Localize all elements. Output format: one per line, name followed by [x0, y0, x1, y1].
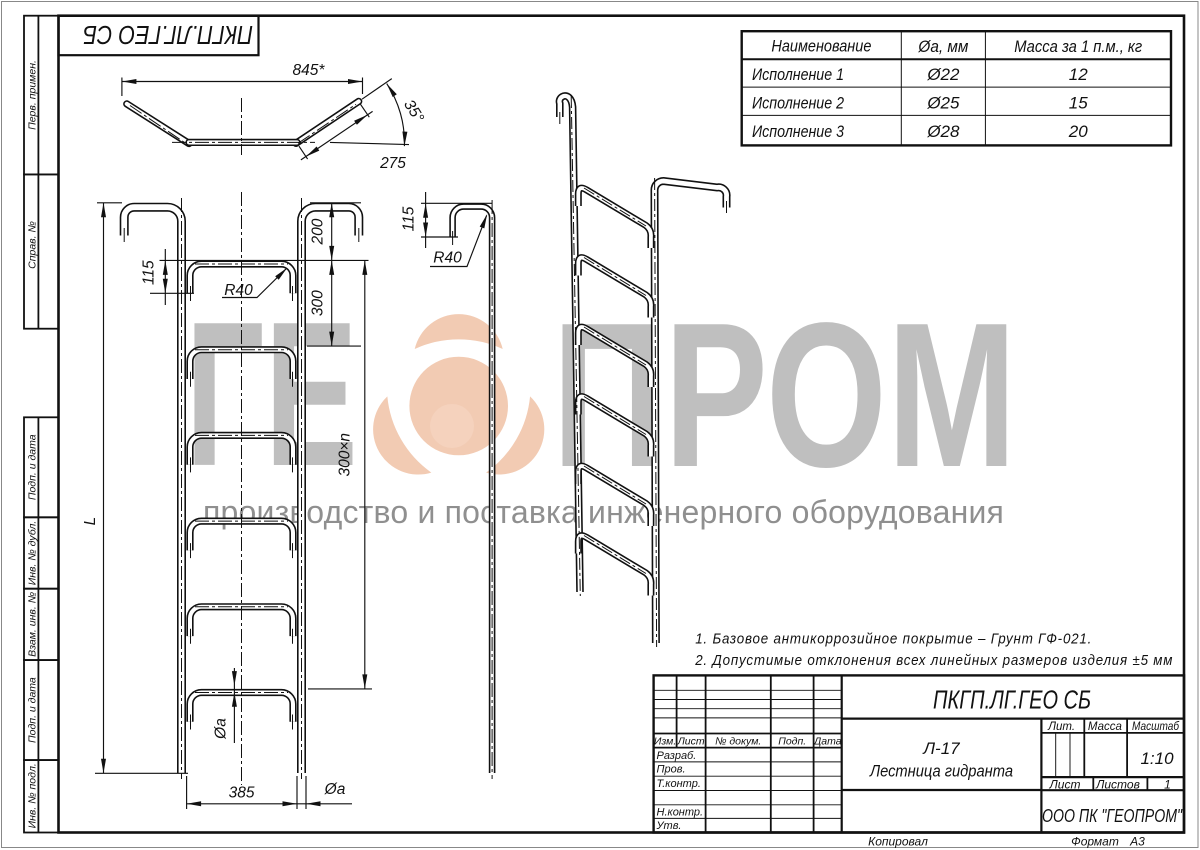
svg-text:№ докум.: № докум.: [715, 736, 761, 748]
svg-text:300: 300: [310, 290, 327, 316]
svg-text:Лист: Лист: [677, 736, 705, 748]
svg-text:А3: А3: [1129, 835, 1145, 849]
svg-text:Разраб.: Разраб.: [657, 750, 697, 762]
svg-text:Дата: Дата: [813, 736, 842, 748]
svg-text:115: 115: [401, 206, 418, 231]
svg-text:275: 275: [379, 155, 406, 172]
svg-text:Øа: Øа: [213, 718, 230, 740]
svg-text:20: 20: [1068, 122, 1088, 141]
svg-text:Перв. примен.: Перв. примен.: [26, 60, 38, 130]
svg-text:Инв. № дубл.: Инв. № дубл.: [26, 521, 38, 586]
svg-text:Подп. и дата: Подп. и дата: [26, 677, 38, 743]
svg-text:Исполнение 2: Исполнение 2: [752, 93, 844, 112]
svg-text:1. Базовое антикоррозийное пок: 1. Базовое антикоррозийное покрытие – Гр…: [695, 631, 1092, 648]
svg-text:L: L: [82, 517, 99, 526]
svg-text:Справ. №: Справ. №: [26, 221, 38, 269]
svg-text:ООО ПК "ГЕОПРОМ": ООО ПК "ГЕОПРОМ": [1042, 806, 1183, 826]
svg-text:12: 12: [1069, 65, 1088, 84]
svg-text:Масса за 1 п.м., кг: Масса за 1 п.м., кг: [1014, 37, 1142, 56]
svg-text:Наименование: Наименование: [771, 37, 871, 56]
svg-text:Листов: Листов: [1095, 777, 1140, 791]
svg-text:15: 15: [1069, 93, 1088, 112]
svg-text:385: 385: [229, 785, 255, 802]
svg-text:Лист: Лист: [1049, 777, 1081, 791]
svg-text:Масштаб: Масштаб: [1132, 721, 1179, 733]
svg-text:Исполнение 3: Исполнение 3: [752, 122, 844, 141]
svg-text:300×n: 300×n: [337, 433, 354, 477]
svg-text:R40: R40: [433, 250, 462, 267]
svg-text:200: 200: [310, 218, 327, 245]
svg-text:ПКГП.ЛГ.ГЕО СБ: ПКГП.ЛГ.ГЕО СБ: [933, 685, 1091, 715]
svg-text:ПРОМ: ПРОМ: [552, 280, 1017, 510]
svg-text:R40: R40: [224, 282, 253, 299]
svg-text:производство и поставка инжене: производство и поставка инженерного обор…: [203, 494, 1004, 530]
svg-text:Øа: Øа: [324, 781, 346, 798]
svg-text:Подп. и дата: Подп. и дата: [26, 434, 38, 500]
svg-text:Взам. инв. №: Взам. инв. №: [26, 592, 38, 657]
svg-text:Исполнение 1: Исполнение 1: [752, 65, 844, 84]
svg-text:Подп.: Подп.: [778, 736, 806, 748]
svg-text:Ø28: Ø28: [926, 122, 960, 141]
svg-text:ПКГП.ЛГ.ГЕО СБ: ПКГП.ЛГ.ГЕО СБ: [83, 20, 253, 50]
svg-text:1: 1: [1164, 777, 1171, 791]
svg-text:Масса: Масса: [1088, 721, 1122, 733]
svg-text:Изм.: Изм.: [654, 736, 676, 748]
svg-text:Л-17: Л-17: [922, 739, 960, 758]
svg-text:Т.контр.: Т.контр.: [657, 778, 701, 790]
svg-text:2. Допустимые отклонения всех: 2. Допустимые отклонения всех линейных р…: [694, 652, 1173, 669]
svg-text:Пров.: Пров.: [657, 764, 686, 776]
svg-text:Øа, мм: Øа, мм: [917, 37, 968, 56]
svg-text:Копировал: Копировал: [868, 835, 928, 849]
svg-text:Н.контр.: Н.контр.: [657, 807, 704, 819]
svg-text:115: 115: [141, 260, 158, 285]
svg-text:845*: 845*: [293, 62, 326, 79]
svg-text:Формат: Формат: [1071, 835, 1119, 849]
svg-text:1:10: 1:10: [1140, 749, 1174, 768]
svg-text:Ø25: Ø25: [926, 93, 960, 112]
svg-text:Инв. № подл.: Инв. № подл.: [26, 763, 38, 828]
svg-text:Лит.: Лит.: [1047, 721, 1075, 733]
svg-text:Утв.: Утв.: [656, 820, 682, 832]
svg-text:Лестница гидранта: Лестница гидранта: [869, 762, 1013, 781]
svg-text:Ø22: Ø22: [926, 65, 960, 84]
